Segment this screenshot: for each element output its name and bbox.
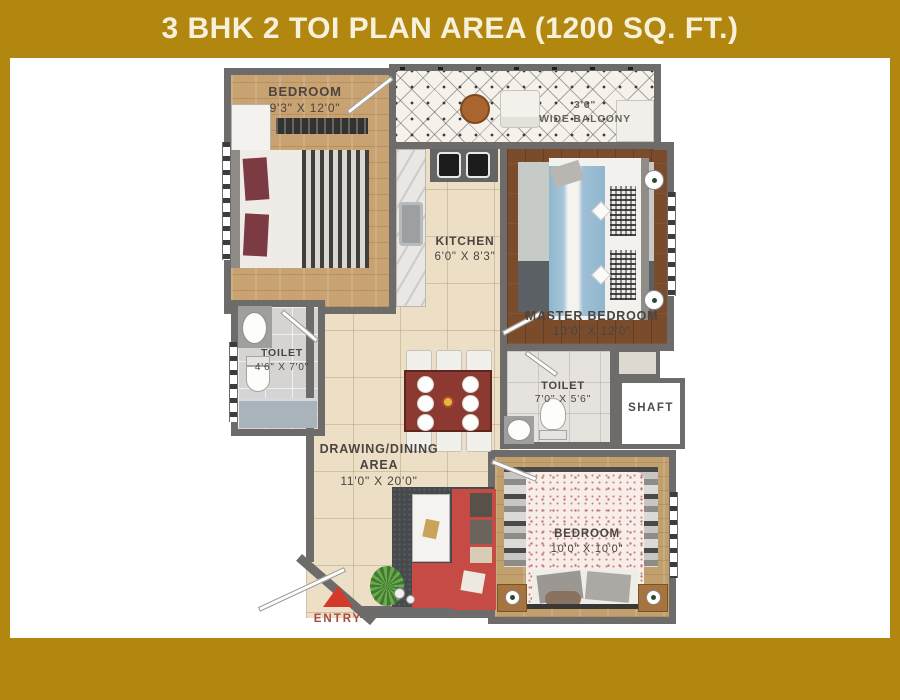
room-name: KITCHEN [424, 234, 506, 250]
balcony-label: 3'6" WIDE BALCONY [522, 99, 648, 126]
dining-chair [466, 430, 492, 452]
bed-striped-blanket [302, 150, 369, 268]
dining-chair [406, 350, 432, 372]
dining-chair [466, 350, 492, 372]
entry-label: ENTRY [299, 612, 377, 627]
toilet-left-label: TOILET 4'6" X 7'0" [246, 347, 318, 374]
nightstand-lamp [505, 590, 520, 605]
room-size: 10'0" X 10'0" [540, 542, 634, 556]
room-size: 6'0" X 8'3" [424, 250, 506, 265]
master-side-table [644, 290, 664, 310]
master-side-table [644, 170, 664, 190]
window-toilet-left [229, 342, 238, 422]
shaft-label: SHAFT [620, 401, 682, 416]
floor-vase [394, 588, 405, 599]
dimension-ticks [400, 67, 650, 70]
room-size: 9'3" X 12'0" [242, 101, 368, 117]
bed-footboard [526, 604, 644, 609]
master-plaid-pillow [610, 250, 636, 300]
frame-bottom [0, 638, 900, 700]
kitchen-sink [399, 202, 423, 246]
entry-text: ENTRY [299, 612, 377, 627]
nightstand-lamp [646, 590, 661, 605]
stove-burner [466, 152, 490, 178]
washbasin [507, 419, 531, 441]
plate [417, 395, 434, 412]
toilet-tank [539, 430, 567, 440]
plant [370, 566, 404, 606]
bed-pillow [585, 571, 631, 603]
room-name: BEDROOM [540, 527, 634, 542]
room-name: SHAFT [620, 401, 682, 416]
bed-headboard [231, 150, 240, 268]
bedroom-top-label: BEDROOM 9'3" X 12'0" [242, 84, 368, 116]
plate [462, 376, 479, 393]
sofa-cushion [470, 520, 492, 544]
window-bedroom-top [222, 142, 231, 260]
balcony-table [460, 94, 490, 124]
plate [417, 414, 434, 431]
room-name: WIDE BALCONY [522, 113, 648, 127]
window-master-bedroom [667, 192, 676, 296]
master-bedroom-label: MASTER BEDROOM 10'0" X 12'0" [520, 308, 664, 340]
page-title: 3 BHK 2 TOI PLAN AREA (1200 SQ. FT.) [0, 0, 900, 58]
balcony-width: 3'6" [522, 99, 648, 113]
entry-arrow-icon [323, 586, 353, 607]
kitchen-label: KITCHEN 6'0" X 8'3" [424, 234, 506, 265]
utility-cabinet-box [615, 348, 660, 378]
bedroom-bottom-label: BEDROOM 10'0" X 10'0" [540, 527, 634, 556]
room-size: 4'6" X 7'0" [246, 361, 318, 374]
master-plaid-pillow [610, 186, 636, 236]
room-name-2: AREA [316, 457, 442, 473]
washbasin [242, 312, 267, 344]
floor-plan: BEDROOM 9'3" X 12'0" 3'6" WIDE BALCONY K… [0, 58, 900, 638]
shower-area [239, 398, 317, 428]
bed-pillow [243, 213, 269, 256]
wall-stub-balcony-master [654, 142, 674, 150]
master-bed-blue-blanket [549, 166, 605, 316]
stove-burner [437, 152, 461, 178]
room-name: DRAWING/DINING [316, 441, 442, 457]
window-bedroom-bottom [669, 492, 678, 578]
plate [462, 395, 479, 412]
room-name: BEDROOM [242, 84, 368, 101]
toilet-middle-label: TOILET 7'0" X 5'6" [524, 379, 602, 407]
bed-pillow [243, 157, 270, 201]
drawing-dining-label: DRAWING/DINING AREA 11'0" X 20'0" [316, 441, 442, 489]
room-size: 11'0" X 20'0" [316, 474, 442, 490]
dining-chair [436, 350, 462, 372]
room-size: 7'0" X 5'6" [524, 393, 602, 407]
plate [462, 414, 479, 431]
title-bar: 3 BHK 2 TOI PLAN AREA (1200 SQ. FT.) [0, 0, 900, 58]
plate [417, 376, 434, 393]
sofa-cushion [470, 493, 492, 517]
room-name: TOILET [524, 379, 602, 393]
table-centerpiece [442, 396, 454, 408]
room-name: MASTER BEDROOM [520, 308, 664, 324]
sofa-pillow [460, 570, 485, 594]
floor-vase [406, 595, 415, 604]
dresser [276, 118, 368, 134]
room-size: 10'0" X 12'0" [520, 324, 664, 340]
room-name: TOILET [246, 347, 318, 361]
